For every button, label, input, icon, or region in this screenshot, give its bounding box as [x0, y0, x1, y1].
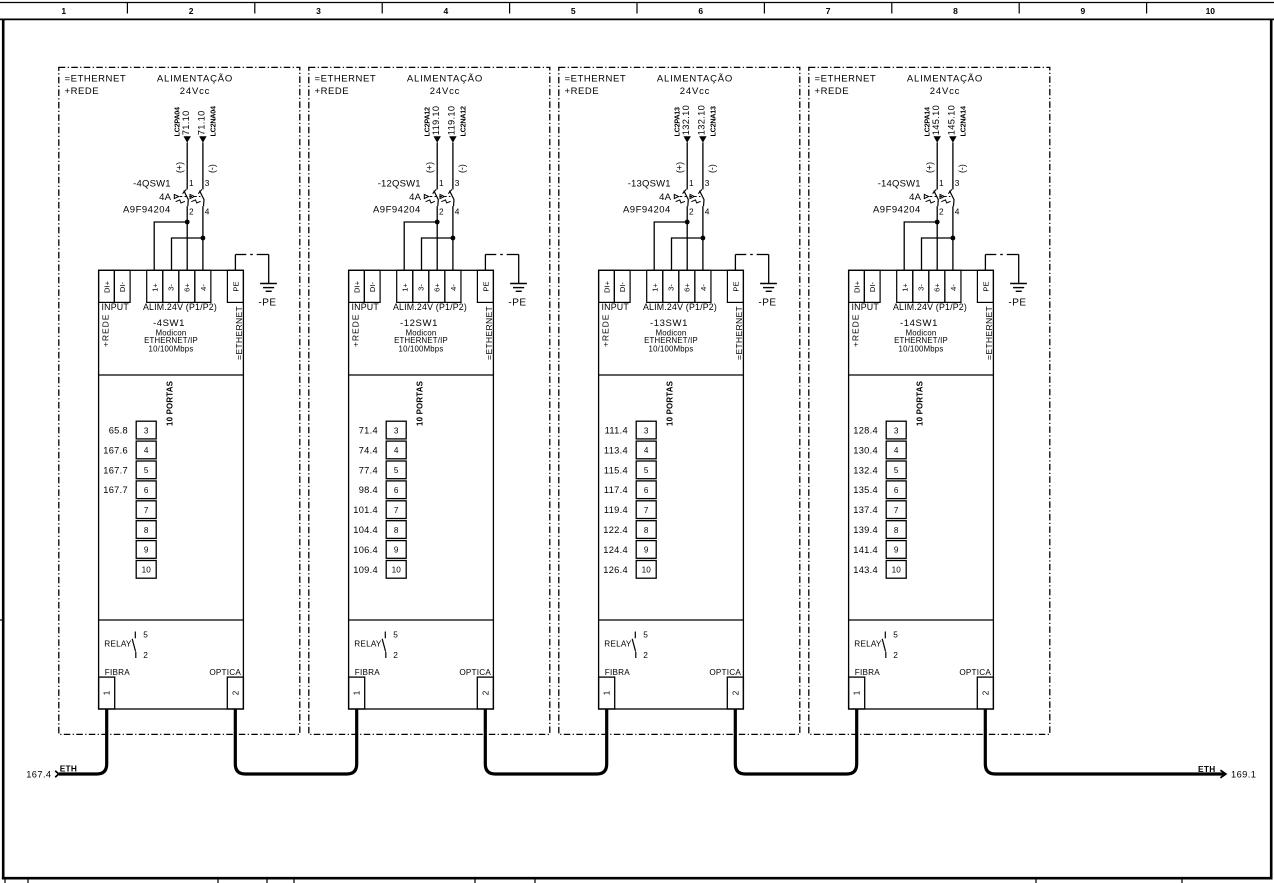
- svg-text:-4QSW1: -4QSW1: [133, 178, 171, 189]
- svg-text:6+: 6+: [933, 283, 942, 292]
- svg-text:+REDE: +REDE: [351, 314, 361, 347]
- svg-text:128.4: 128.4: [853, 426, 878, 436]
- svg-text:A9F94204: A9F94204: [123, 204, 171, 215]
- svg-text:4A: 4A: [409, 192, 421, 203]
- svg-text:4: 4: [444, 6, 449, 16]
- svg-text:+REDE: +REDE: [815, 86, 850, 97]
- svg-text:DI-: DI-: [618, 281, 627, 292]
- svg-text:6: 6: [394, 486, 399, 495]
- svg-text:6+: 6+: [183, 283, 192, 292]
- svg-text:167.7: 167.7: [103, 485, 128, 495]
- svg-text:RELAY: RELAY: [854, 640, 882, 649]
- svg-text:(+): (+): [674, 162, 684, 173]
- svg-text:=ETHERNET: =ETHERNET: [565, 74, 627, 85]
- svg-text:FIBRA: FIBRA: [355, 668, 380, 677]
- svg-text:9: 9: [144, 546, 149, 555]
- svg-text:DI-: DI-: [368, 281, 377, 292]
- svg-text:(-): (-): [707, 164, 717, 173]
- svg-text:145.10: 145.10: [931, 105, 941, 135]
- svg-text:5: 5: [571, 6, 576, 16]
- svg-text:1: 1: [103, 690, 112, 695]
- svg-text:115.4: 115.4: [604, 465, 628, 475]
- svg-text:OPTICA: OPTICA: [209, 668, 241, 677]
- svg-text:8: 8: [894, 526, 899, 535]
- svg-text:=ETHERNET: =ETHERNET: [734, 306, 744, 360]
- svg-text:(-): (-): [957, 164, 967, 173]
- svg-text:RELAY: RELAY: [604, 640, 632, 649]
- svg-text:113.4: 113.4: [604, 445, 628, 455]
- svg-text:+REDE: +REDE: [851, 314, 861, 347]
- svg-text:3: 3: [705, 178, 710, 188]
- svg-text:10: 10: [392, 566, 402, 575]
- svg-text:FIBRA: FIBRA: [105, 668, 130, 677]
- svg-text:5: 5: [894, 466, 899, 475]
- svg-text:98.4: 98.4: [359, 485, 378, 495]
- svg-text:LC2NA04: LC2NA04: [209, 106, 218, 136]
- svg-text:A9F94204: A9F94204: [373, 204, 421, 215]
- svg-text:DI+: DI+: [852, 280, 861, 293]
- svg-text:4A: 4A: [909, 192, 921, 203]
- svg-text:24Vcc: 24Vcc: [180, 86, 210, 97]
- svg-text:167.7: 167.7: [103, 465, 128, 475]
- svg-text:10/100Mbps: 10/100Mbps: [899, 344, 944, 353]
- svg-text:(+): (+): [174, 162, 184, 173]
- svg-text:111.4: 111.4: [605, 426, 628, 436]
- svg-text:8: 8: [394, 526, 399, 535]
- svg-text:1: 1: [853, 690, 862, 695]
- svg-text:1: 1: [603, 690, 612, 695]
- svg-text:6+: 6+: [433, 283, 442, 292]
- svg-text:+REDE: +REDE: [315, 86, 350, 97]
- svg-text:ALIMENTAÇÃO: ALIMENTAÇÃO: [157, 74, 233, 85]
- svg-text:5: 5: [393, 630, 398, 640]
- svg-text:-4SW1: -4SW1: [153, 318, 185, 329]
- svg-text:3: 3: [894, 426, 899, 435]
- svg-text:+REDE: +REDE: [101, 314, 111, 347]
- svg-text:5: 5: [144, 466, 149, 475]
- svg-text:-PE: -PE: [258, 297, 276, 308]
- svg-text:3-: 3-: [417, 284, 426, 291]
- svg-text:65.8: 65.8: [109, 426, 128, 436]
- svg-text:143.4: 143.4: [853, 565, 878, 575]
- svg-text:9: 9: [644, 546, 649, 555]
- svg-text:6+: 6+: [683, 283, 692, 292]
- svg-text:9: 9: [1081, 6, 1086, 16]
- svg-text:6: 6: [144, 486, 149, 495]
- svg-text:-PE: -PE: [758, 297, 776, 308]
- svg-text:74.4: 74.4: [359, 445, 378, 455]
- svg-text:PE: PE: [981, 281, 990, 291]
- svg-text:=ETHERNET: =ETHERNET: [65, 74, 127, 85]
- svg-text:LC2NA14: LC2NA14: [959, 106, 968, 136]
- svg-text:4-: 4-: [199, 284, 208, 291]
- svg-text:3: 3: [455, 178, 460, 188]
- svg-text:2: 2: [689, 206, 694, 216]
- svg-text:=ETHERNET: =ETHERNET: [815, 74, 877, 85]
- svg-text:167.6: 167.6: [103, 445, 128, 455]
- svg-text:169.1: 169.1: [1231, 770, 1256, 780]
- svg-text:8: 8: [644, 526, 649, 535]
- svg-text:1: 1: [61, 6, 66, 16]
- svg-text:10 PORTAS: 10 PORTAS: [665, 381, 674, 426]
- svg-text:=ETHERNET: =ETHERNET: [315, 74, 377, 85]
- svg-text:-12QSW1: -12QSW1: [378, 178, 421, 189]
- svg-text:-13QSW1: -13QSW1: [628, 178, 671, 189]
- svg-text:ALIMENTAÇÃO: ALIMENTAÇÃO: [657, 74, 733, 85]
- svg-text:3-: 3-: [917, 284, 926, 291]
- svg-text:INPUT: INPUT: [852, 302, 880, 312]
- svg-text:130.4: 130.4: [853, 445, 878, 455]
- svg-text:7: 7: [144, 506, 149, 515]
- svg-text:119.10: 119.10: [447, 106, 457, 136]
- svg-text:DI+: DI+: [352, 280, 361, 293]
- svg-text:4: 4: [955, 206, 960, 216]
- svg-text:10 PORTAS: 10 PORTAS: [415, 381, 424, 426]
- svg-text:132.4: 132.4: [853, 465, 878, 475]
- svg-text:4-: 4-: [949, 284, 958, 291]
- svg-text:ALIMENTAÇÃO: ALIMENTAÇÃO: [407, 74, 483, 85]
- svg-text:124.4: 124.4: [603, 545, 628, 555]
- svg-text:24Vcc: 24Vcc: [930, 86, 960, 97]
- svg-text:3: 3: [955, 178, 960, 188]
- svg-text:132.10: 132.10: [681, 105, 691, 135]
- svg-text:2: 2: [439, 206, 444, 216]
- svg-text:DI+: DI+: [602, 280, 611, 293]
- svg-text:77.4: 77.4: [359, 465, 378, 475]
- svg-text:-PE: -PE: [508, 297, 526, 308]
- svg-text:1+: 1+: [401, 283, 410, 292]
- svg-text:104.4: 104.4: [353, 525, 378, 535]
- svg-text:3: 3: [644, 426, 649, 435]
- svg-text:DI-: DI-: [118, 281, 127, 292]
- svg-text:109.4: 109.4: [353, 565, 378, 575]
- svg-text:2: 2: [643, 650, 648, 660]
- svg-text:4: 4: [205, 206, 210, 216]
- svg-text:1: 1: [439, 178, 444, 188]
- svg-text:106.4: 106.4: [353, 545, 378, 555]
- svg-text:DI+: DI+: [102, 280, 111, 293]
- svg-text:2: 2: [731, 690, 740, 695]
- svg-text:3: 3: [144, 426, 149, 435]
- svg-text:6: 6: [894, 486, 899, 495]
- svg-text:PE: PE: [481, 281, 490, 291]
- svg-text:117.4: 117.4: [604, 485, 628, 495]
- svg-text:1: 1: [689, 178, 694, 188]
- svg-text:INPUT: INPUT: [352, 302, 380, 312]
- svg-text:ETH: ETH: [1198, 764, 1216, 774]
- svg-text:INPUT: INPUT: [602, 302, 630, 312]
- svg-text:8: 8: [953, 6, 958, 16]
- svg-text:(+): (+): [424, 162, 434, 173]
- svg-text:4-: 4-: [699, 284, 708, 291]
- svg-text:=ETHERNET: =ETHERNET: [484, 306, 494, 360]
- svg-text:FIBRA: FIBRA: [855, 668, 880, 677]
- svg-text:1+: 1+: [151, 283, 160, 292]
- svg-text:7: 7: [644, 506, 649, 515]
- svg-text:4: 4: [144, 446, 149, 455]
- svg-text:(-): (-): [207, 164, 217, 173]
- svg-text:167.4: 167.4: [26, 769, 51, 779]
- svg-text:3: 3: [394, 426, 399, 435]
- svg-text:3: 3: [205, 178, 210, 188]
- svg-text:5: 5: [644, 466, 649, 475]
- svg-text:ALIM.24V (P1/P2): ALIM.24V (P1/P2): [893, 302, 967, 312]
- svg-text:2: 2: [893, 650, 898, 660]
- svg-text:5: 5: [394, 466, 399, 475]
- svg-text:+REDE: +REDE: [565, 86, 600, 97]
- svg-text:2: 2: [939, 206, 944, 216]
- svg-text:LC2NA13: LC2NA13: [709, 106, 718, 136]
- svg-text:5: 5: [643, 630, 648, 640]
- svg-text:-14QSW1: -14QSW1: [878, 178, 921, 189]
- svg-text:10 PORTAS: 10 PORTAS: [165, 381, 174, 426]
- svg-text:OPTICA: OPTICA: [459, 668, 491, 677]
- svg-text:71.4: 71.4: [359, 426, 378, 436]
- svg-text:-PE: -PE: [1008, 297, 1026, 308]
- svg-text:+REDE: +REDE: [65, 86, 100, 97]
- svg-text:ALIM.24V (P1/P2): ALIM.24V (P1/P2): [393, 302, 467, 312]
- svg-text:A9F94204: A9F94204: [873, 204, 921, 215]
- svg-text:10: 10: [1206, 6, 1216, 16]
- svg-text:6: 6: [698, 6, 703, 16]
- svg-text:119.4: 119.4: [604, 505, 628, 515]
- svg-text:PE: PE: [231, 281, 240, 291]
- svg-text:5: 5: [143, 630, 148, 640]
- svg-text:1: 1: [353, 690, 362, 695]
- svg-text:71.10: 71.10: [197, 110, 207, 135]
- svg-text:1: 1: [939, 178, 944, 188]
- svg-text:(-): (-): [457, 164, 467, 173]
- svg-text:ALIM.24V (P1/P2): ALIM.24V (P1/P2): [143, 302, 217, 312]
- svg-text:3: 3: [316, 6, 321, 16]
- svg-text:1+: 1+: [901, 283, 910, 292]
- svg-text:8: 8: [144, 526, 149, 535]
- svg-text:122.4: 122.4: [603, 525, 628, 535]
- svg-text:A9F94204: A9F94204: [623, 204, 671, 215]
- svg-text:-13SW1: -13SW1: [650, 318, 688, 329]
- svg-text:4: 4: [705, 206, 710, 216]
- svg-text:1: 1: [189, 178, 194, 188]
- svg-text:FIBRA: FIBRA: [605, 668, 630, 677]
- svg-text:135.4: 135.4: [853, 485, 878, 495]
- svg-text:10/100Mbps: 10/100Mbps: [649, 344, 694, 353]
- svg-text:2: 2: [189, 206, 194, 216]
- svg-text:10/100Mbps: 10/100Mbps: [399, 344, 444, 353]
- svg-text:4A: 4A: [159, 192, 171, 203]
- svg-text:10: 10: [642, 566, 652, 575]
- svg-text:4A: 4A: [659, 192, 671, 203]
- svg-text:24Vcc: 24Vcc: [680, 86, 710, 97]
- svg-text:RELAY: RELAY: [354, 640, 382, 649]
- svg-text:=ETHERNET: =ETHERNET: [984, 306, 994, 360]
- svg-text:4: 4: [455, 206, 460, 216]
- svg-text:141.4: 141.4: [853, 545, 878, 555]
- svg-text:ALIMENTAÇÃO: ALIMENTAÇÃO: [907, 74, 983, 85]
- svg-text:119.10: 119.10: [431, 106, 441, 136]
- svg-text:OPTICA: OPTICA: [709, 668, 741, 677]
- svg-text:10/100Mbps: 10/100Mbps: [149, 344, 194, 353]
- svg-text:126.4: 126.4: [603, 565, 628, 575]
- svg-text:OPTICA: OPTICA: [959, 668, 991, 677]
- svg-text:4-: 4-: [449, 284, 458, 291]
- svg-text:DI-: DI-: [868, 281, 877, 292]
- svg-text:3-: 3-: [667, 284, 676, 291]
- svg-text:7: 7: [826, 6, 831, 16]
- svg-text:145.10: 145.10: [947, 105, 957, 135]
- svg-text:ETH: ETH: [60, 764, 77, 774]
- svg-text:139.4: 139.4: [853, 525, 878, 535]
- svg-text:3-: 3-: [167, 284, 176, 291]
- svg-text:LC2NA12: LC2NA12: [459, 106, 468, 136]
- svg-text:10: 10: [142, 566, 152, 575]
- svg-text:10: 10: [892, 566, 902, 575]
- svg-text:1+: 1+: [651, 283, 660, 292]
- svg-text:71.10: 71.10: [181, 110, 191, 135]
- svg-text:2: 2: [981, 690, 990, 695]
- svg-text:ALIM.24V (P1/P2): ALIM.24V (P1/P2): [643, 302, 717, 312]
- svg-text:2: 2: [231, 690, 240, 695]
- svg-text:4: 4: [644, 446, 649, 455]
- svg-text:9: 9: [394, 546, 399, 555]
- svg-text:4: 4: [394, 446, 399, 455]
- svg-text:4: 4: [894, 446, 899, 455]
- svg-text:INPUT: INPUT: [102, 302, 130, 312]
- svg-text:2: 2: [189, 6, 194, 16]
- svg-text:24Vcc: 24Vcc: [430, 86, 460, 97]
- svg-text:=ETHERNET: =ETHERNET: [234, 306, 244, 360]
- svg-text:2: 2: [481, 690, 490, 695]
- svg-text:RELAY: RELAY: [104, 640, 132, 649]
- svg-text:7: 7: [394, 506, 399, 515]
- svg-text:7: 7: [894, 506, 899, 515]
- svg-text:-12SW1: -12SW1: [400, 318, 438, 329]
- svg-text:6: 6: [644, 486, 649, 495]
- svg-text:(+): (+): [924, 162, 934, 173]
- svg-text:2: 2: [393, 650, 398, 660]
- svg-text:5: 5: [893, 630, 898, 640]
- svg-text:-14SW1: -14SW1: [900, 318, 938, 329]
- svg-text:9: 9: [894, 546, 899, 555]
- svg-text:PE: PE: [731, 281, 740, 291]
- svg-text:10 PORTAS: 10 PORTAS: [915, 381, 924, 426]
- svg-text:101.4: 101.4: [353, 505, 378, 515]
- svg-text:137.4: 137.4: [853, 505, 878, 515]
- svg-text:+REDE: +REDE: [601, 314, 611, 347]
- svg-text:132.10: 132.10: [697, 105, 707, 135]
- svg-text:2: 2: [143, 650, 148, 660]
